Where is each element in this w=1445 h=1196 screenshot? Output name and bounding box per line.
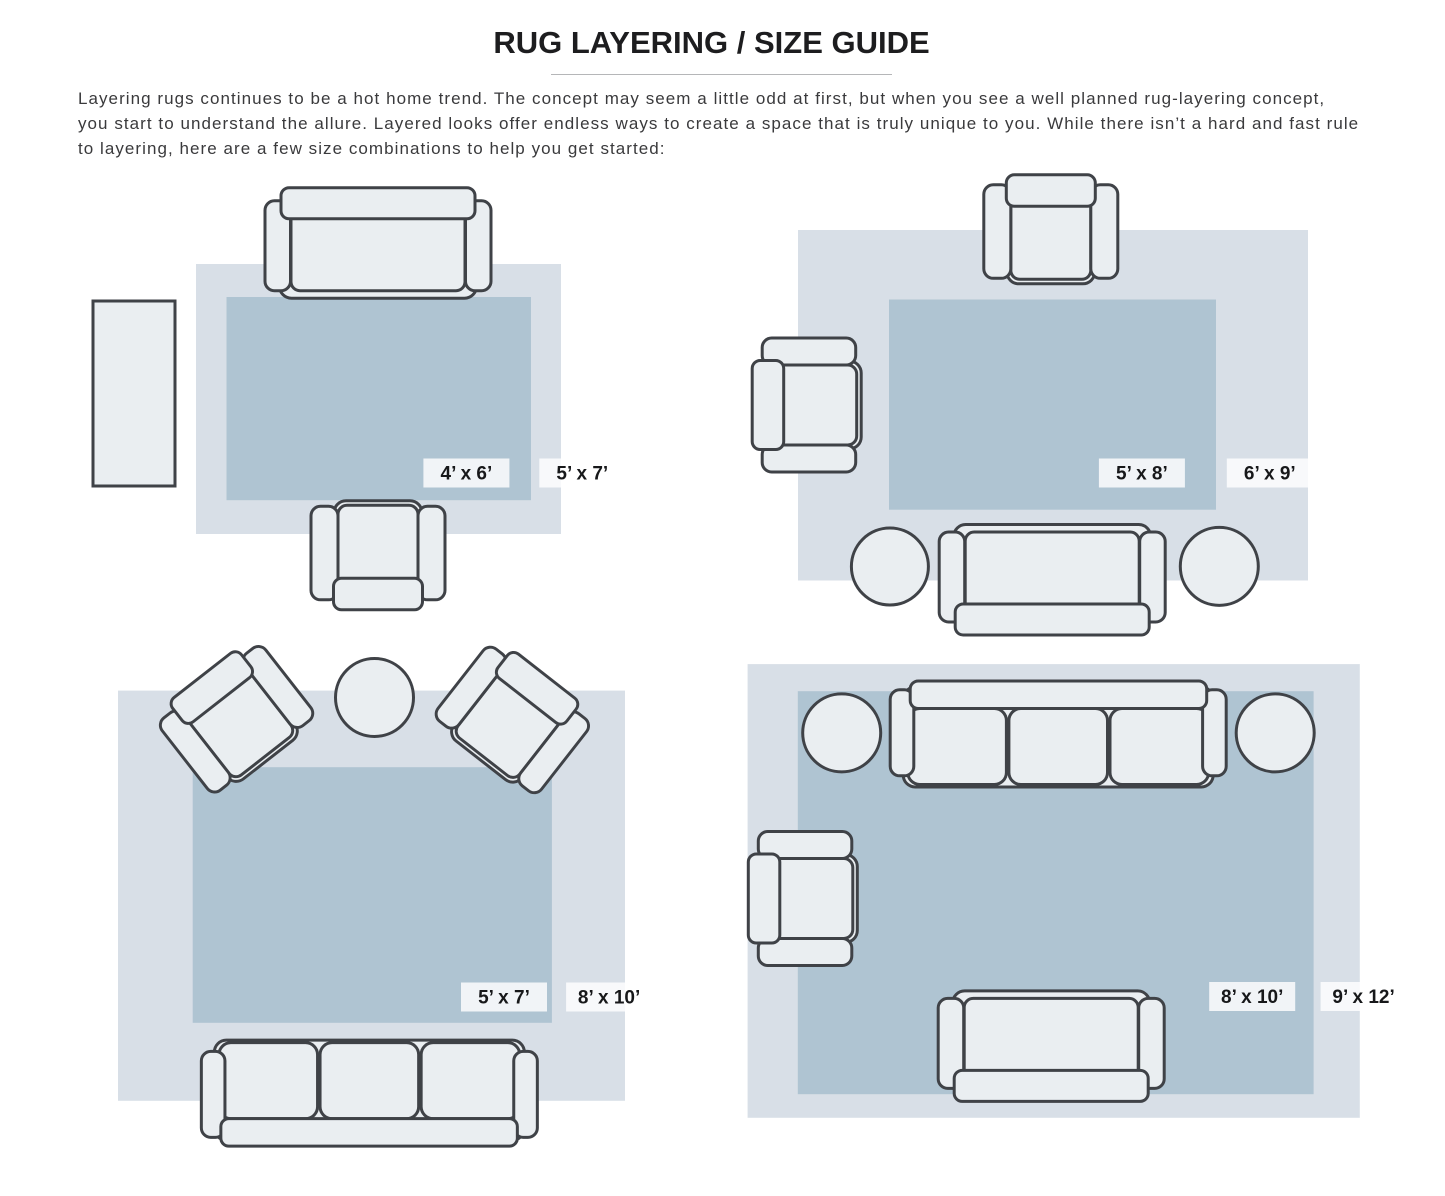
svg-text:8’ x 10’: 8’ x 10’ — [578, 988, 640, 1009]
svg-text:5’ x 7’: 5’ x 7’ — [478, 988, 530, 1009]
svg-text:6’ x 9’: 6’ x 9’ — [1244, 464, 1296, 485]
svg-text:4’ x 6’: 4’ x 6’ — [441, 464, 493, 485]
svg-text:9’ x 12’: 9’ x 12’ — [1332, 987, 1394, 1008]
svg-text:5’ x 7’: 5’ x 7’ — [556, 464, 608, 485]
svg-text:5’ x 8’: 5’ x 8’ — [1116, 464, 1168, 485]
svg-text:8’ x 10’: 8’ x 10’ — [1221, 987, 1283, 1008]
